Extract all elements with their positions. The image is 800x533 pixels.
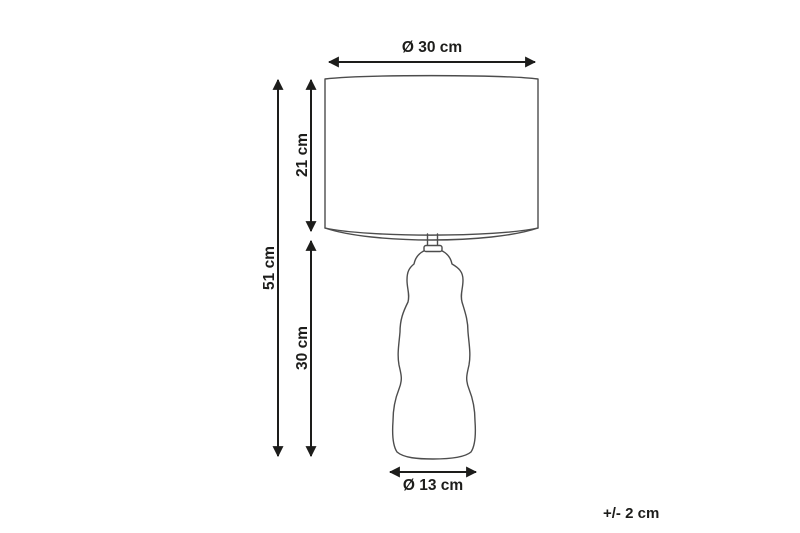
dim-shade-diameter-label: Ø 30 cm [402, 39, 462, 56]
dim-total-height-label: 51 cm [261, 246, 278, 290]
lamp-dimension-diagram: Ø 30 cm 51 cm 21 cm 30 cm Ø 13 cm +/- 2 … [0, 0, 800, 533]
dim-base-height-label: 30 cm [294, 326, 311, 370]
dim-shade-height-label: 21 cm [294, 133, 311, 177]
lamp-neck-collar [424, 246, 442, 252]
lamp-shade-outline [325, 76, 538, 236]
dim-base-diameter-label: Ø 13 cm [403, 477, 463, 494]
lamp-base-outline [393, 249, 476, 459]
tolerance-label: +/- 2 cm [603, 505, 659, 522]
dimension-diagram-canvas: Ø 30 cm 51 cm 21 cm 30 cm Ø 13 cm +/- 2 … [0, 0, 800, 533]
